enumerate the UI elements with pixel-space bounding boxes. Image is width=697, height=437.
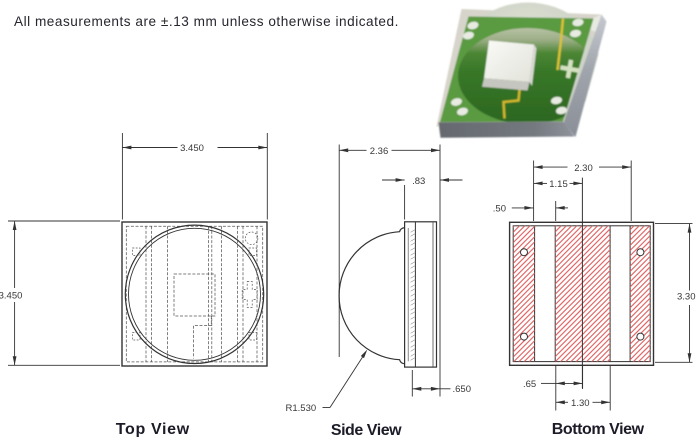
svg-text:2.36: 2.36 <box>370 146 389 157</box>
svg-text:3.30: 3.30 <box>677 292 696 303</box>
svg-text:.650: .650 <box>453 384 472 395</box>
svg-text:1.15: 1.15 <box>549 179 568 190</box>
svg-text:Bottom View: Bottom View <box>552 421 645 437</box>
svg-text:2.30: 2.30 <box>574 163 593 174</box>
svg-text:3.450: 3.450 <box>0 290 22 301</box>
svg-text:.83: .83 <box>412 176 425 187</box>
svg-text:3.450: 3.450 <box>180 143 204 154</box>
svg-text:1.30: 1.30 <box>571 398 590 409</box>
svg-text:Side View: Side View <box>331 422 402 437</box>
svg-text:.50: .50 <box>493 204 506 215</box>
svg-text:.65: .65 <box>523 379 536 390</box>
svg-text:All measurements are ±.13 mm u: All measurements are ±.13 mm unless othe… <box>14 14 399 29</box>
svg-text:R1.530: R1.530 <box>286 403 317 414</box>
svg-text:Top View: Top View <box>116 421 190 437</box>
